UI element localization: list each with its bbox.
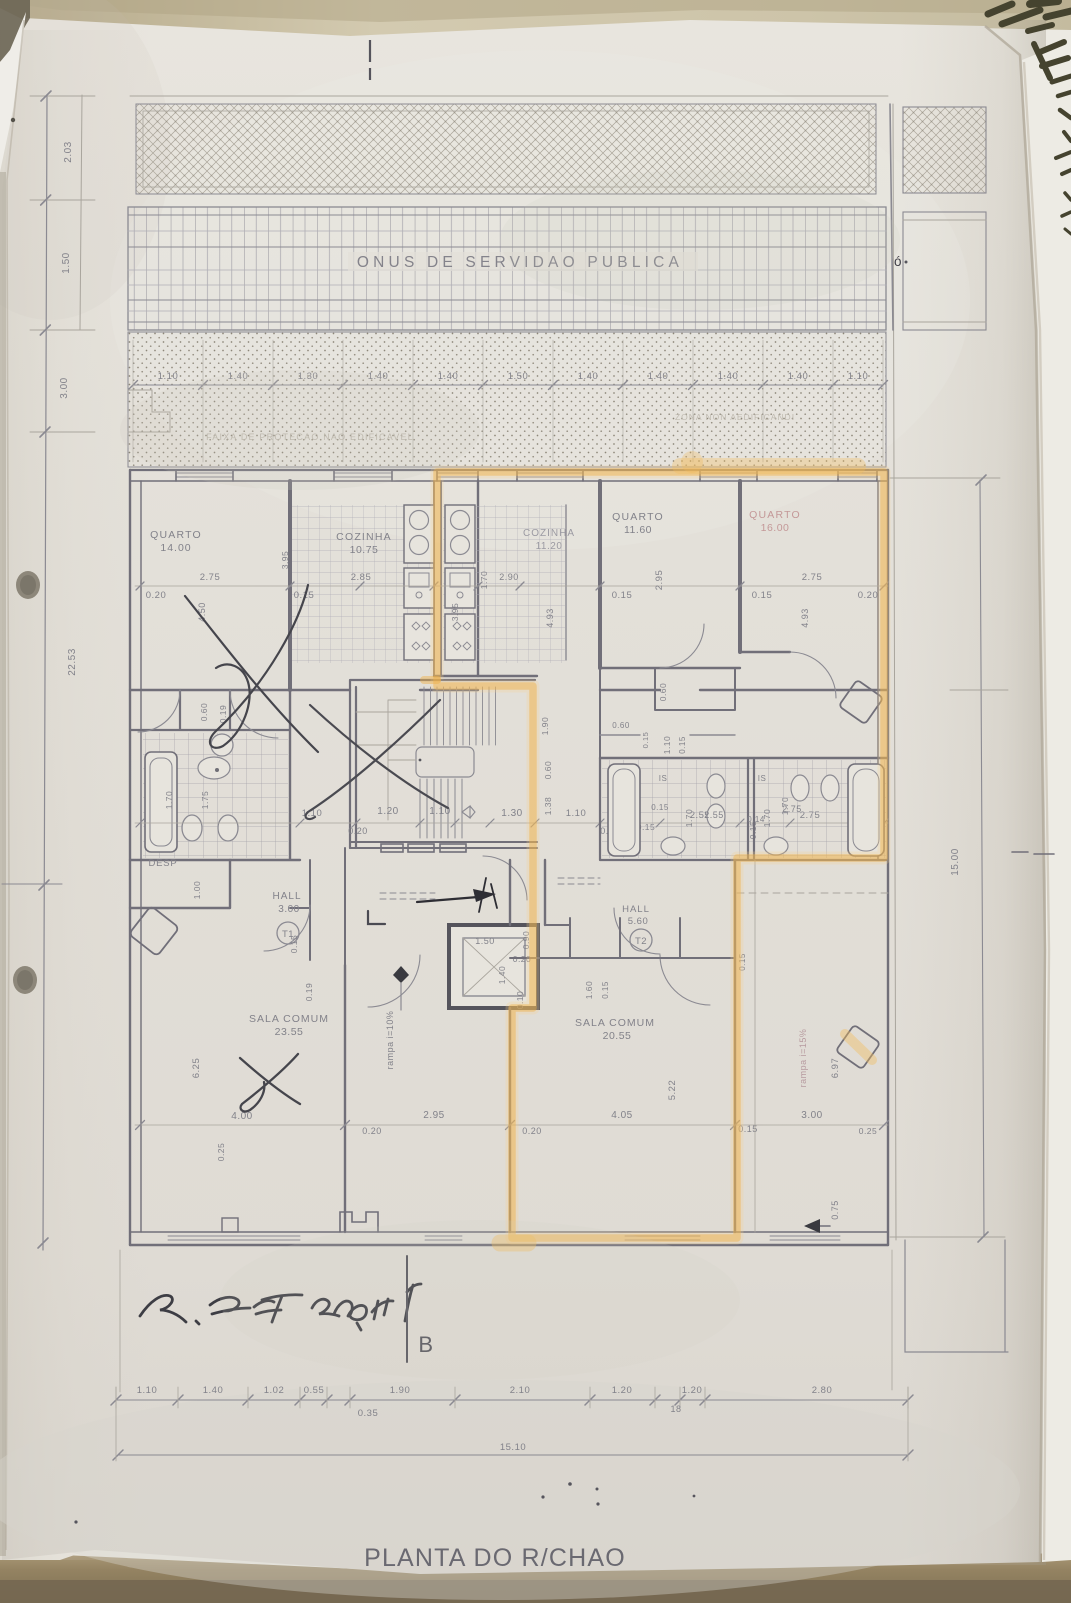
svg-text:1.10: 1.10 xyxy=(137,1385,158,1396)
svg-text:rampa i=15%: rampa i=15% xyxy=(798,1029,808,1088)
svg-text:11.60: 11.60 xyxy=(624,524,652,536)
svg-text:0.20: 0.20 xyxy=(146,590,167,601)
svg-text:ó: ó xyxy=(894,254,902,269)
svg-text:SALA COMUM: SALA COMUM xyxy=(249,1013,329,1025)
svg-text:15.00: 15.00 xyxy=(950,848,961,876)
svg-text:0.15: 0.15 xyxy=(612,590,633,601)
svg-text:11.20: 11.20 xyxy=(536,541,563,552)
svg-text:2.75: 2.75 xyxy=(782,804,802,814)
svg-text:0.15: 0.15 xyxy=(601,981,610,999)
svg-text:1.10: 1.10 xyxy=(848,371,869,382)
svg-text:1.10: 1.10 xyxy=(662,736,672,755)
svg-text:1.50: 1.50 xyxy=(475,936,495,946)
svg-text:IS: IS xyxy=(659,774,668,783)
svg-text:2.75: 2.75 xyxy=(200,572,221,583)
svg-text:1.40: 1.40 xyxy=(788,371,809,382)
svg-text:2.90: 2.90 xyxy=(499,572,519,582)
svg-text:COZINHA: COZINHA xyxy=(523,528,575,539)
svg-text:QUARTO: QUARTO xyxy=(150,529,202,541)
svg-text:0.15: 0.15 xyxy=(641,732,650,749)
svg-text:4.93: 4.93 xyxy=(545,608,555,628)
svg-text:0.20: 0.20 xyxy=(362,1126,382,1136)
svg-text:1.70: 1.70 xyxy=(479,571,489,590)
svg-text:0.60: 0.60 xyxy=(199,703,209,722)
svg-text:0.15: 0.15 xyxy=(289,935,299,954)
svg-text:QUARTO: QUARTO xyxy=(612,511,664,523)
svg-text:1.00: 1.00 xyxy=(192,881,202,900)
svg-text:0.20: 0.20 xyxy=(348,826,368,836)
svg-text:1.90: 1.90 xyxy=(390,1385,411,1396)
svg-text:2.03: 2.03 xyxy=(63,141,74,162)
svg-text:QUARTO: QUARTO xyxy=(749,509,801,521)
svg-text:2.75: 2.75 xyxy=(802,572,823,583)
svg-text:1.90: 1.90 xyxy=(540,717,550,736)
svg-text:1.50: 1.50 xyxy=(61,252,72,273)
svg-text:0.25: 0.25 xyxy=(859,1126,878,1136)
svg-text:2.55: 2.55 xyxy=(704,810,724,820)
svg-text:0.25: 0.25 xyxy=(216,1143,226,1162)
svg-text:14.00: 14.00 xyxy=(160,542,191,554)
svg-text:0.55: 0.55 xyxy=(304,1385,325,1396)
svg-text:0.20: 0.20 xyxy=(858,590,879,601)
svg-text:23.55: 23.55 xyxy=(275,1026,304,1038)
svg-text:1.70: 1.70 xyxy=(164,791,174,810)
svg-text:IS: IS xyxy=(758,774,767,783)
svg-text:1.10: 1.10 xyxy=(566,808,587,819)
svg-text:1.30: 1.30 xyxy=(501,808,522,819)
svg-text:0.15: 0.15 xyxy=(678,736,687,754)
svg-text:HALL: HALL xyxy=(622,904,650,915)
svg-text:0.60: 0.60 xyxy=(543,761,553,780)
svg-text:SALA COMUM: SALA COMUM xyxy=(575,1017,655,1029)
svg-text:PLANTA DO R/CHAO: PLANTA DO R/CHAO xyxy=(364,1544,626,1572)
svg-text:1.50: 1.50 xyxy=(508,371,529,382)
svg-text:2.80: 2.80 xyxy=(812,1385,833,1396)
svg-text:0.60: 0.60 xyxy=(658,683,668,702)
svg-text:COZINHA: COZINHA xyxy=(336,531,392,543)
svg-text:20.55: 20.55 xyxy=(603,1030,632,1042)
svg-text:DESP: DESP xyxy=(148,858,177,869)
svg-text:0.60: 0.60 xyxy=(612,721,630,730)
svg-text:1.40: 1.40 xyxy=(578,371,599,382)
svg-text:1.40: 1.40 xyxy=(203,1385,224,1396)
svg-text:4.00: 4.00 xyxy=(231,1111,252,1122)
svg-text:1.20: 1.20 xyxy=(612,1385,633,1396)
svg-text:1.20: 1.20 xyxy=(682,1385,703,1396)
svg-text:0.75: 0.75 xyxy=(830,1200,840,1220)
svg-text:1.10: 1.10 xyxy=(158,371,179,382)
svg-text:0.35: 0.35 xyxy=(358,1408,379,1419)
svg-text:1.75: 1.75 xyxy=(200,791,210,810)
svg-text:ZONA NON AEDIFICANDI: ZONA NON AEDIFICANDI xyxy=(675,412,795,422)
svg-text:2.85: 2.85 xyxy=(351,572,372,583)
svg-text:22.53: 22.53 xyxy=(67,648,78,676)
svg-text:1.70: 1.70 xyxy=(684,809,694,828)
svg-text:1.20: 1.20 xyxy=(377,806,398,817)
svg-text:5.22: 5.22 xyxy=(667,1080,678,1101)
svg-text:6.97: 6.97 xyxy=(830,1058,841,1079)
svg-text:3.95: 3.95 xyxy=(450,603,460,622)
svg-text:1.40: 1.40 xyxy=(497,966,507,985)
svg-text:3.95: 3.95 xyxy=(280,551,290,570)
svg-text:3.00: 3.00 xyxy=(278,904,299,915)
svg-text:1.40: 1.40 xyxy=(648,371,669,382)
svg-text:0.19: 0.19 xyxy=(304,983,314,1002)
svg-text:2.10: 2.10 xyxy=(510,1385,531,1396)
svg-text:0.15: 0.15 xyxy=(651,803,669,812)
svg-text:2.95: 2.95 xyxy=(654,570,665,591)
svg-text:T2: T2 xyxy=(635,936,647,947)
svg-text:3.00: 3.00 xyxy=(59,377,70,398)
svg-text:15.10: 15.10 xyxy=(500,1442,526,1453)
svg-text:2.95: 2.95 xyxy=(423,1110,444,1121)
svg-text:4.05: 4.05 xyxy=(611,1110,632,1121)
svg-text:0.20: 0.20 xyxy=(522,1126,542,1136)
svg-text:6.25: 6.25 xyxy=(191,1058,202,1079)
svg-text:1.02: 1.02 xyxy=(264,1385,285,1396)
svg-text:16.00: 16.00 xyxy=(761,522,790,534)
svg-text:1.40: 1.40 xyxy=(718,371,739,382)
svg-text:1.38: 1.38 xyxy=(543,797,553,816)
svg-text:rampa i=10%: rampa i=10% xyxy=(385,1011,395,1070)
svg-text:HALL: HALL xyxy=(272,891,301,902)
svg-text:3.00: 3.00 xyxy=(801,1110,822,1121)
svg-text:4.93: 4.93 xyxy=(800,608,810,628)
svg-text:1.60: 1.60 xyxy=(584,981,594,1000)
svg-text:0.14: 0.14 xyxy=(747,815,765,824)
svg-text:1.40: 1.40 xyxy=(438,371,459,382)
svg-text:0.15: 0.15 xyxy=(752,590,773,601)
svg-text:5.60: 5.60 xyxy=(628,916,649,927)
svg-text:10.75: 10.75 xyxy=(350,544,379,556)
svg-text:18: 18 xyxy=(670,1404,681,1414)
